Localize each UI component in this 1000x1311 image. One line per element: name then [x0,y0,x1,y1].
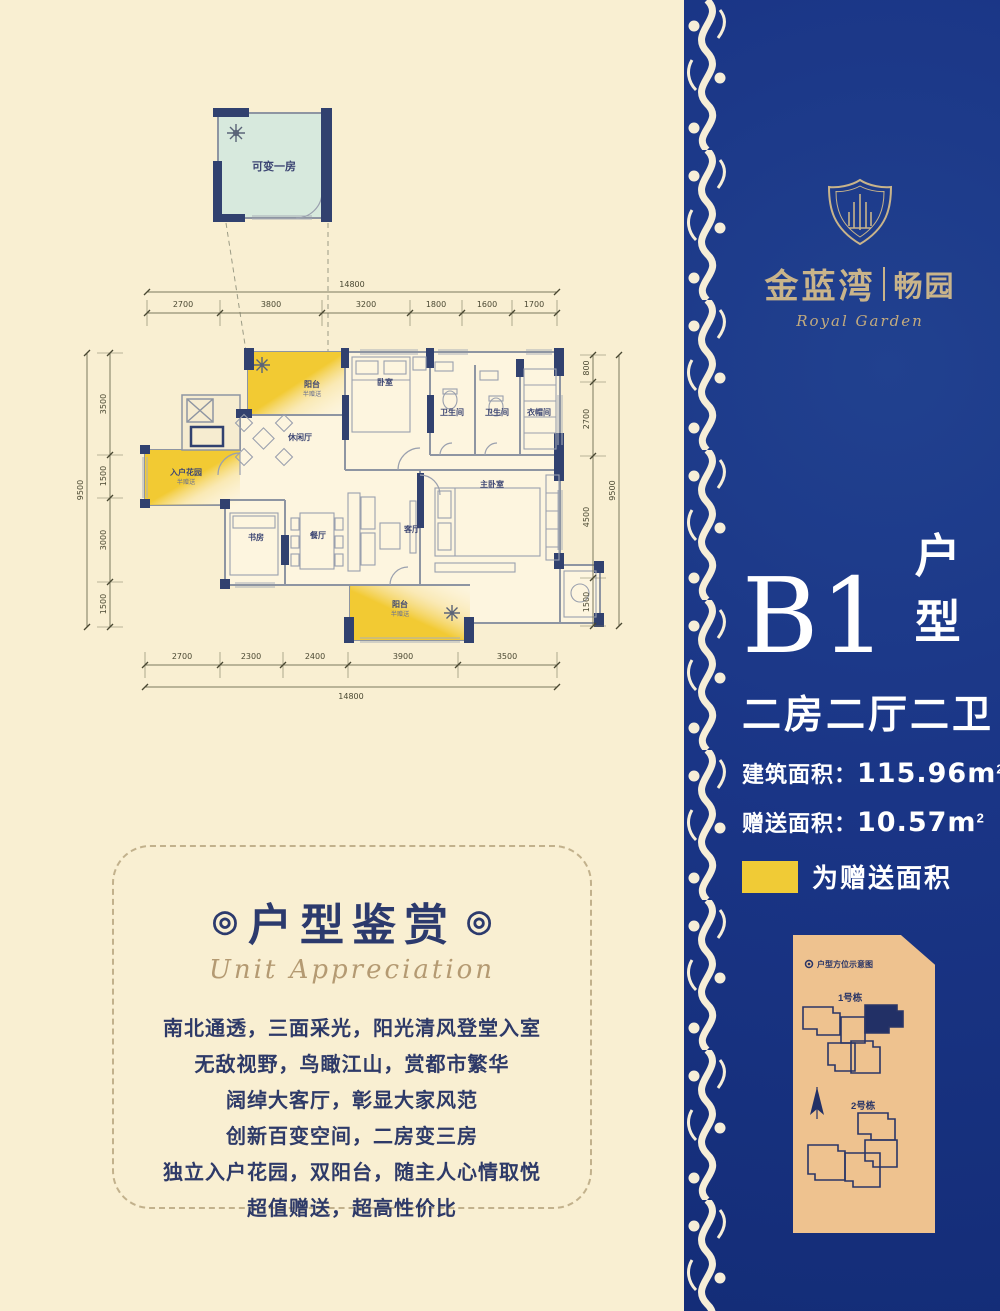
appreciation-line: 创新百变空间，二房变三房 [114,1119,590,1155]
svg-text:3500: 3500 [99,394,108,414]
floor-plan-svg: 可变一房阳台半赠送卧室卫生间卫生间衣帽间休闲厅入户花园半赠送书房餐厅客厅主卧室阳… [60,95,670,715]
svg-text:半赠送: 半赠送 [303,390,322,398]
unit-code-suffix: 户型 [915,520,978,652]
svg-text:2400: 2400 [305,652,325,661]
svg-text:半赠送: 半赠送 [391,610,410,618]
svg-text:800: 800 [582,360,591,375]
shield-icon [823,178,897,246]
svg-text:9500: 9500 [76,480,85,500]
unit-code-row: B1 户型 [742,520,978,662]
area-unit: m [967,758,996,789]
area-unit-exp: 2 [996,762,1000,777]
svg-text:1500: 1500 [99,466,108,486]
svg-text:3200: 3200 [356,300,376,309]
ring-icon: ◎ [466,904,492,939]
appreciation-line: 阔绰大客厅，彰显大家风范 [114,1083,590,1119]
appreciation-box: ◎ 户型鉴赏 ◎ Unit Appreciation 南北通透，三面采光，阳光清… [112,845,592,1209]
svg-text:2700: 2700 [172,652,192,661]
svg-text:书房: 书房 [248,532,264,542]
appreciation-line: 南北通透，三面采光，阳光清风登堂入室 [114,1011,590,1047]
gift-color-swatch [742,861,798,893]
svg-text:1800: 1800 [426,300,446,309]
built-area-label: 建筑面积： [742,762,857,787]
appreciation-line: 独立入户花园，双阳台，随主人心情取悦 [114,1155,590,1191]
unit-info: B1 户型 二房二厅二卫 建筑面积：115.96m2 赠送面积：10.57m2 … [742,520,978,895]
appreciation-lines: 南北通透，三面采光，阳光清风登堂入室无敌视野，鸟瞰江山，赏都市繁华阔绰大客厅，彰… [114,1011,590,1227]
svg-text:1600: 1600 [477,300,497,309]
svg-text:3500: 3500 [497,652,517,661]
gift-area-row: 赠送面积：10.57m2 [742,806,978,838]
svg-text:1500: 1500 [582,592,591,612]
svg-text:14800: 14800 [339,280,364,289]
svg-text:3800: 3800 [261,300,281,309]
appreciation-subtitle: Unit Appreciation [114,955,590,985]
svg-text:2号栋: 2号栋 [851,1100,876,1112]
svg-text:半赠送: 半赠送 [177,478,196,486]
svg-text:主卧室: 主卧室 [480,479,504,489]
appreciation-title: ◎ 户型鉴赏 ◎ [114,889,590,953]
appreciation-title-text: 户型鉴赏 [248,889,456,953]
svg-text:阳台: 阳台 [392,599,408,609]
svg-text:卧室: 卧室 [377,377,393,387]
poster: 可变一房阳台半赠送卧室卫生间卫生间衣帽间休闲厅入户花园半赠送书房餐厅客厅主卧室阳… [0,0,1000,1311]
svg-text:客厅: 客厅 [403,524,420,534]
area-unit-exp: 2 [977,811,985,826]
svg-text:3900: 3900 [393,652,413,661]
svg-text:入户花园: 入户花园 [169,467,202,477]
unit-code: B1 [742,570,889,662]
svg-text:餐厅: 餐厅 [309,530,326,540]
appreciation-line: 无敌视野，鸟瞰江山，赏都市繁华 [114,1047,590,1083]
svg-text:卫生间: 卫生间 [485,407,509,417]
divider [883,267,885,301]
brand-name-left: 金蓝湾 [764,259,875,308]
svg-text:2300: 2300 [241,652,261,661]
gift-legend: 为赠送面积 [742,858,978,895]
svg-text:9500: 9500 [608,480,617,500]
svg-text:1700: 1700 [524,300,544,309]
svg-text:1500: 1500 [99,594,108,614]
svg-text:14800: 14800 [338,692,363,701]
compass-icon [810,1087,824,1119]
svg-text:3000: 3000 [99,530,108,550]
svg-text:户型方位示意图: 户型方位示意图 [817,959,873,969]
ornament-border [684,0,730,1311]
floor-plan: 可变一房阳台半赠送卧室卫生间卫生间衣帽间休闲厅入户花园半赠送书房餐厅客厅主卧室阳… [60,95,670,715]
brand-logo: 金蓝湾 畅园 Royal Garden [730,178,990,330]
svg-text:衣帽间: 衣帽间 [527,407,551,417]
svg-text:4500: 4500 [582,507,591,527]
brand-name-right: 畅园 [893,263,955,305]
brand-name: 金蓝湾 畅园 [730,259,990,308]
appreciation-line: 超值赠送，超高性价比 [114,1191,590,1227]
svg-text:休闲厅: 休闲厅 [287,432,312,442]
site-map-svg: 户型方位示意图1号栋2号栋 [793,935,935,1233]
gift-area-label: 赠送面积： [742,811,857,836]
svg-text:2700: 2700 [173,300,193,309]
ring-icon: ◎ [212,904,238,939]
built-area-value: 115.96 [857,758,967,789]
highlighted-unit [865,1005,903,1033]
svg-text:阳台: 阳台 [304,379,320,389]
brand-script: Royal Garden [730,312,990,330]
area-unit: m [947,807,976,838]
unit-layout: 二房二厅二卫 [742,684,978,740]
svg-text:可变一房: 可变一房 [252,159,296,173]
elevator-core [182,395,240,450]
gift-legend-text: 为赠送面积 [812,858,952,895]
svg-text:卫生间: 卫生间 [440,407,464,417]
gift-area-value: 10.57 [857,807,947,838]
built-area-row: 建筑面积：115.96m2 [742,757,978,789]
svg-text:1号栋: 1号栋 [838,992,863,1004]
side-panel: 金蓝湾 畅园 Royal Garden B1 户型 二房二厅二卫 建筑面积：11… [684,0,1000,1311]
site-map-panel: 户型方位示意图1号栋2号栋 [793,935,935,1233]
svg-text:2700: 2700 [582,409,591,429]
